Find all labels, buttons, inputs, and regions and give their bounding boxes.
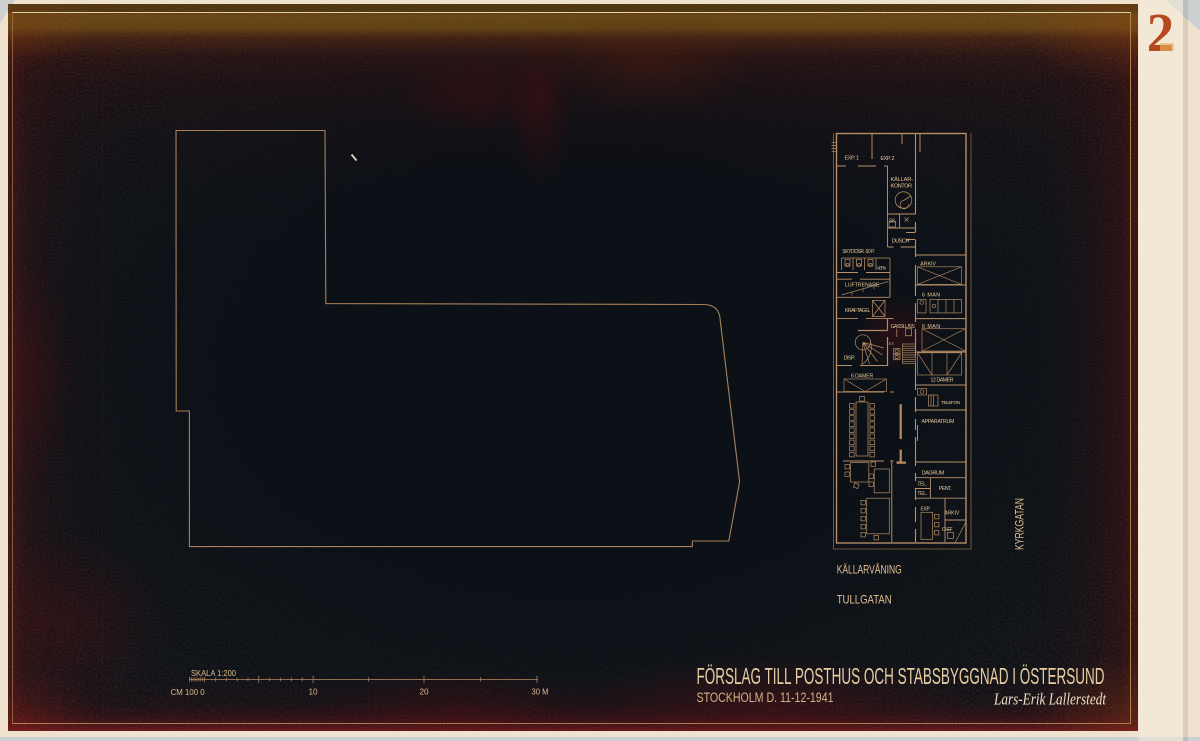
svg-text:KYRKGATAN: KYRKGATAN — [1014, 498, 1027, 550]
svg-text:TELEFON: TELEFON — [941, 400, 961, 406]
svg-text:TULLGATAN: TULLGATAN — [837, 594, 892, 607]
svg-text:Lars-Erik Lallerstedt: Lars-Erik Lallerstedt — [993, 690, 1106, 709]
svg-text:KONTOR: KONTOR — [891, 183, 913, 189]
svg-text:STOCKHOLM D. 11-12-1941: STOCKHOLM D. 11-12-1941 — [697, 690, 834, 705]
svg-text:APPARATRUM: APPARATRUM — [922, 419, 955, 425]
svg-text:ST.: ST. — [889, 342, 895, 346]
svg-text:FÖRSLAG TILL POSTHUS OCH STABS: FÖRSLAG TILL POSTHUS OCH STABSBYGGNAD I … — [697, 663, 1105, 689]
svg-text:KÄLLAR-: KÄLLAR- — [891, 176, 914, 183]
svg-text:6 MAN: 6 MAN — [922, 293, 940, 299]
svg-text:PENT.: PENT. — [939, 486, 952, 492]
svg-text:LUFTRENARE: LUFTRENARE — [845, 283, 880, 289]
svg-text:DUSCH: DUSCH — [892, 238, 910, 244]
svg-text:ARKIV: ARKIV — [920, 261, 936, 267]
svg-text:CHEF: CHEF — [942, 527, 953, 533]
svg-text:TEL.: TEL. — [917, 482, 927, 488]
svg-text:DAGRUM: DAGRUM — [922, 471, 945, 477]
svg-text:DISP.: DISP. — [844, 355, 855, 361]
svg-text:GASSLUSS: GASSLUSS — [891, 324, 916, 330]
svg-text:SKYDDSR. 60 P.: SKYDDSR. 60 P. — [842, 249, 875, 255]
svg-text:SKALA 1:200: SKALA 1:200 — [191, 669, 236, 678]
svg-text:20: 20 — [420, 687, 430, 696]
svg-text:ARKIV: ARKIV — [944, 511, 960, 517]
svg-text:10: 10 — [309, 687, 319, 696]
svg-text:KÄLLARVÅNING: KÄLLARVÅNING — [837, 564, 902, 577]
svg-text:TEL.: TEL. — [917, 491, 927, 497]
svg-text:30 M: 30 M — [532, 687, 549, 696]
svg-text:6 DAMER: 6 DAMER — [851, 374, 873, 380]
svg-text:KRAFTAGG.: KRAFTAGG. — [845, 308, 870, 314]
svg-text:EXP.: EXP. — [921, 506, 931, 512]
svg-text:VERK: VERK — [877, 266, 887, 271]
svg-text:12 DAMER: 12 DAMER — [931, 378, 954, 384]
svg-text:CM 100 0: CM 100 0 — [171, 688, 205, 697]
svg-text:SK.: SK. — [889, 219, 897, 225]
svg-text:6 MAN: 6 MAN — [922, 324, 940, 330]
svg-text:EXP. 1: EXP. 1 — [845, 156, 860, 162]
svg-text:EXP. 2: EXP. 2 — [881, 156, 895, 162]
